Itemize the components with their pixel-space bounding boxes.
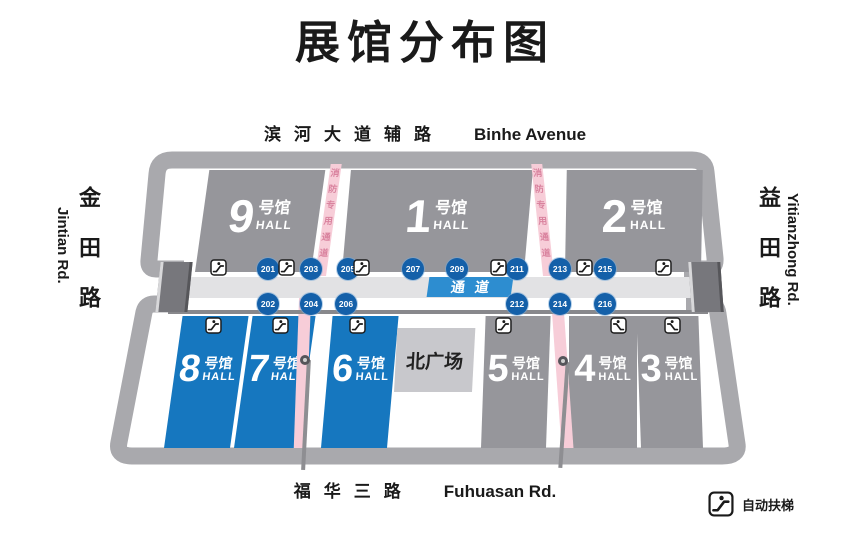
hall-5-number: 5 [487,350,509,388]
road-jintian-en: Jintian Rd. [54,207,71,284]
hall-2-suffix: 号馆 [630,201,666,217]
escalator-icon [272,317,289,334]
hall-6-number: 6 [331,350,355,388]
escalator-icon [708,491,734,517]
hall-6-word: HALL [355,372,389,383]
hall-1-word: HALL [433,219,470,231]
hall-3-word: HALL [665,372,699,383]
hall-8-word: HALL [202,372,237,383]
road-jintian-zh: 金田路 [72,186,104,336]
hall-9-word: HALL [255,219,293,231]
escalator-icon [655,259,672,276]
hall-9-suffix: 号馆 [257,201,295,217]
hall-6: 6 号馆HALL [321,316,399,448]
gate-212: 212 [506,293,528,315]
hall-3-number: 3 [640,350,662,388]
hall-5-suffix: 号馆 [512,356,546,370]
escalator-icon [210,259,227,276]
gate-216: 216 [594,293,616,315]
road-yitianzhong-zh: 益田路 [752,186,784,336]
corridor-end-cap-right [688,262,723,312]
hall-2-word: HALL [630,219,666,231]
gate-203: 203 [300,258,322,280]
gate-204: 204 [300,293,322,315]
north-plaza: 北广场 [394,328,475,392]
hall-4-number: 4 [574,350,595,388]
hall-2-number: 2 [601,193,627,239]
hall-8-number: 8 [177,350,203,388]
road-fuhuasan-zh: 福华三路 [294,477,414,502]
hall-3: 3 号馆HALL [636,316,703,448]
escalator-icon [576,259,593,276]
escalator-icon [353,259,370,276]
escalator-icon [610,317,627,334]
hall-4-suffix: 号馆 [598,356,631,370]
legend: 自动扶梯 [708,491,794,517]
gate-211: 211 [506,258,528,280]
escalator-icon [490,259,507,276]
hall-1-number: 1 [404,193,434,239]
gate-214: 214 [549,293,571,315]
gate-209: 209 [446,258,468,280]
hall-1-suffix: 号馆 [434,201,471,217]
hall-4-word: HALL [598,372,631,383]
corridor-edge [168,310,708,314]
gate-201: 201 [257,258,279,280]
road-yitianzhong-en: Yitianzhong Rd. [784,193,801,306]
page-title: 展馆分布图 [0,6,850,71]
hall-6-suffix: 号馆 [356,356,391,370]
hall-4: 4 号馆HALL [569,316,637,448]
hall-3-suffix: 号馆 [664,356,698,370]
escalator-icon [278,259,295,276]
road-binhe-zh: 滨河大道辅路 [264,120,444,145]
road-fuhuasan-en: Fuhuasan Rd. [444,482,556,502]
hall-9-number: 9 [225,193,257,239]
gate-213: 213 [549,258,571,280]
hall-5-word: HALL [511,372,545,383]
gate-206: 206 [335,293,357,315]
corridor-label: 通道 [427,277,514,297]
corridor-end-cap-left [155,262,192,312]
gate-215: 215 [594,258,616,280]
escalator-icon [495,317,512,334]
road-binhe-en: Binhe Avenue [474,125,586,145]
gate-207: 207 [402,258,424,280]
building-outline [0,0,850,549]
road-binhe: 滨河大道辅路 Binhe Avenue [0,120,850,145]
barrier-knob-1 [300,355,310,365]
hall-9: 9 号馆HALL [195,170,325,272]
gate-202: 202 [257,293,279,315]
exhibition-map: 展馆分布图 滨河大道辅路 Binhe Avenue 福华三路 Fuhuasan … [0,0,850,549]
hall-7-number: 7 [245,350,271,388]
escalator-icon [664,317,681,334]
barrier-knob-2 [558,356,568,366]
escalator-icon [205,317,222,334]
hall-2: 2 号馆HALL [565,170,703,272]
hall-5: 5 号馆HALL [481,316,551,448]
hall-1: 1 号馆HALL [342,170,533,272]
legend-label: 自动扶梯 [742,495,794,514]
escalator-icon [349,317,366,334]
hall-8-suffix: 号馆 [203,356,238,370]
